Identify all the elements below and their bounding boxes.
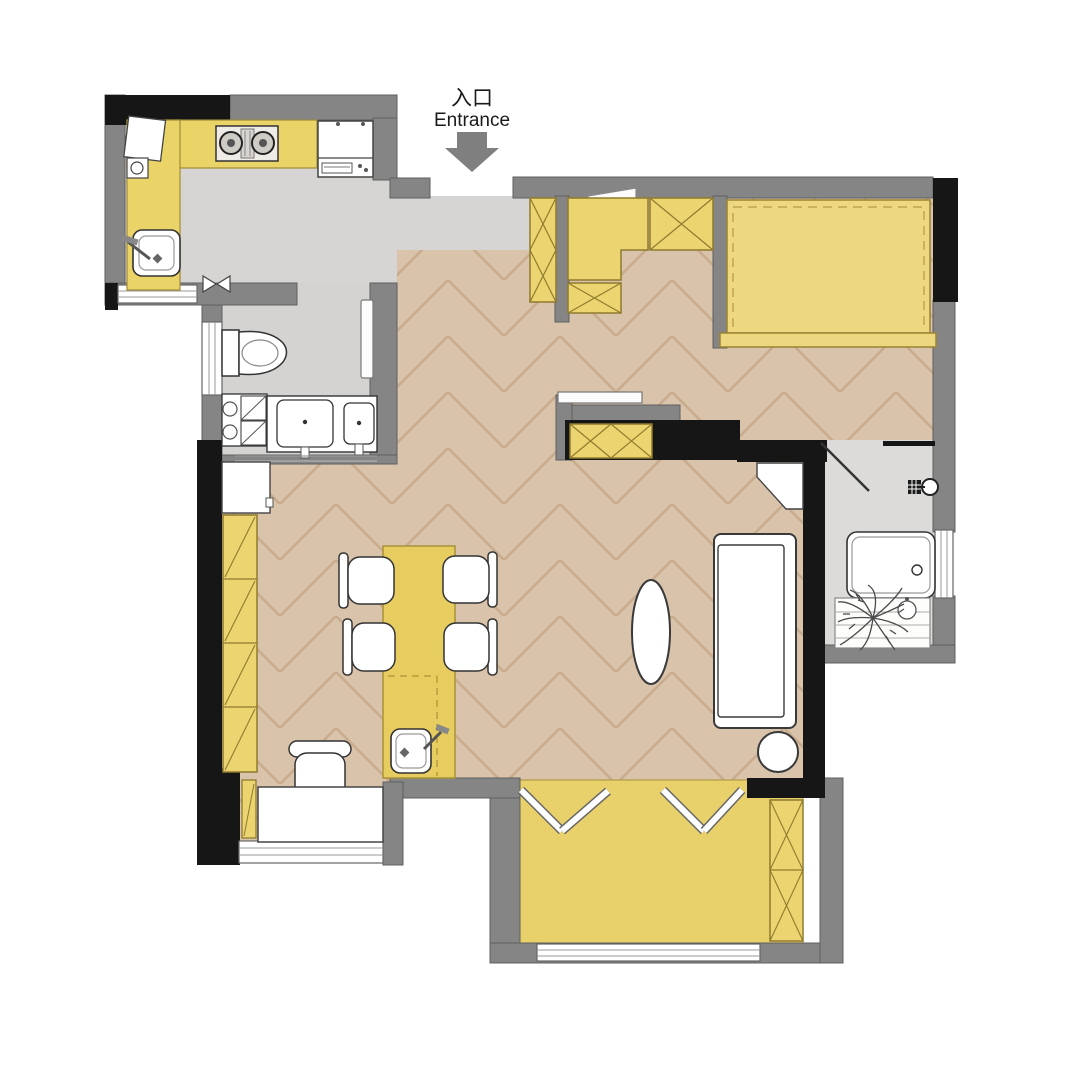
wall (713, 196, 727, 348)
tatami-room-floor (517, 780, 803, 943)
side-table (758, 732, 798, 772)
dining-chair (343, 619, 395, 675)
entry-vestibule-floor (373, 196, 535, 258)
wall (197, 768, 240, 865)
hall-wardrobe (650, 198, 713, 250)
wall (555, 196, 569, 322)
wall (803, 440, 825, 798)
wall (490, 798, 520, 963)
wall (390, 178, 430, 198)
window (202, 322, 222, 395)
wall (105, 95, 125, 305)
dining-chair (444, 619, 497, 675)
entrance-arrow-icon (445, 132, 499, 172)
dining-chair (443, 552, 497, 607)
wall (105, 283, 118, 310)
wall (933, 178, 958, 302)
cooktop (216, 126, 278, 161)
desk (258, 787, 383, 842)
storage-cabinet (222, 462, 270, 513)
kitchen-cart (124, 116, 166, 161)
tatami-wardrobe (770, 800, 803, 941)
coffee-table (632, 580, 670, 684)
entrance-label-en: Entrance (434, 110, 510, 131)
sliding-door-panel (558, 392, 642, 403)
window (935, 530, 953, 598)
sofa (714, 534, 796, 728)
wall (747, 778, 825, 798)
entrance-annotation: 入口 Entrance (434, 87, 510, 172)
bedroom (720, 200, 936, 347)
bed-footboard (720, 333, 936, 347)
hall-low-cabinet (570, 424, 652, 458)
glass-partition (883, 441, 935, 446)
wall (513, 177, 933, 198)
floor-plan-page: 入口 Entrance (0, 0, 1080, 1080)
shoe-cabinet (530, 198, 556, 302)
wall (383, 782, 403, 865)
entrance-label-cn: 入口 (451, 87, 493, 110)
wall (373, 118, 397, 180)
washer-dryer (222, 394, 267, 446)
shower-head-icon (908, 479, 938, 495)
wall (933, 596, 955, 648)
wall (572, 405, 680, 422)
wall (197, 440, 222, 770)
window (239, 841, 383, 863)
dining-chair (339, 553, 394, 608)
small-appliance (127, 158, 148, 178)
sliding-door-panel (361, 300, 373, 378)
bathtub (847, 532, 935, 598)
window (537, 944, 760, 961)
plant-counter (835, 597, 930, 648)
wall (820, 778, 843, 963)
bed (727, 200, 930, 333)
wall (230, 95, 397, 120)
floor-plan-svg: 入口 Entrance (0, 0, 1080, 1080)
refrigerator (318, 121, 373, 177)
wall (390, 778, 520, 798)
